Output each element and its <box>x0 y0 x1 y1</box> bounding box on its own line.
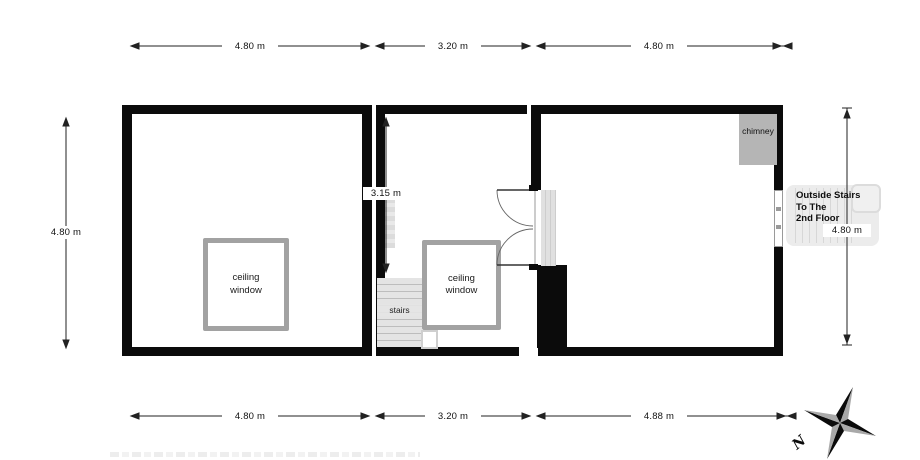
compass-north-label: N <box>789 432 811 454</box>
middle-room-top-wall <box>376 105 527 114</box>
compass-rose-icon: N <box>789 387 876 459</box>
window-tick-icon <box>776 225 781 229</box>
interior-stairs: stairs <box>377 278 422 347</box>
dim-top-left: 4.80 m <box>222 39 278 53</box>
dim-bottom-middle: 3.20 m <box>425 409 481 423</box>
dim-top-middle: 3.20 m <box>425 39 481 53</box>
floor-plan: ceiling window ceiling window stairs chi… <box>0 0 920 460</box>
right-room-right-wall-lower <box>774 247 783 356</box>
left-ceiling-window: ceiling window <box>203 238 289 331</box>
door-side-hatch <box>541 190 556 266</box>
left-room-top-wall <box>122 105 372 114</box>
chimney-label: chimney <box>742 126 774 136</box>
right-room-bottom-wall <box>538 347 783 356</box>
interior-stairs-label: stairs <box>377 304 422 316</box>
right-room-solid-mass <box>537 265 567 348</box>
dim-middle-depth: 3.15 m <box>363 187 409 200</box>
right-wall-opening <box>774 190 783 247</box>
middle-right-shared-wall <box>531 105 541 190</box>
outside-stairs-line2: To The <box>796 202 860 214</box>
left-room-left-wall <box>122 105 132 356</box>
outside-stairs-line1: Outside Stairs <box>796 190 860 202</box>
dim-bottom-right: 4.88 m <box>631 409 687 423</box>
stair-landing <box>421 330 438 349</box>
dim-bottom-left: 4.80 m <box>222 409 278 423</box>
window-tick-icon <box>776 207 781 211</box>
left-room-right-wall <box>362 105 372 356</box>
double-door-icon <box>497 185 538 270</box>
watermark-text <box>110 452 420 457</box>
middle-ceiling-window-label: ceiling window <box>446 273 478 298</box>
left-ceiling-window-label: ceiling window <box>230 272 262 297</box>
outside-stairs-line3: 2nd Floor <box>796 213 860 225</box>
dim-right-side: 4.80 m <box>823 224 871 237</box>
right-room-top-wall <box>538 105 783 114</box>
dim-left-side: 4.80 m <box>42 226 90 239</box>
middle-ceiling-window: ceiling window <box>422 240 501 330</box>
radiator-strip <box>385 198 395 248</box>
middle-room-bottom-wall <box>376 347 519 356</box>
left-room-bottom-wall <box>122 347 372 356</box>
dim-top-right: 4.80 m <box>631 39 687 53</box>
chimney: chimney <box>739 114 777 165</box>
outside-stairs-label: Outside Stairs To The 2nd Floor <box>796 190 860 225</box>
